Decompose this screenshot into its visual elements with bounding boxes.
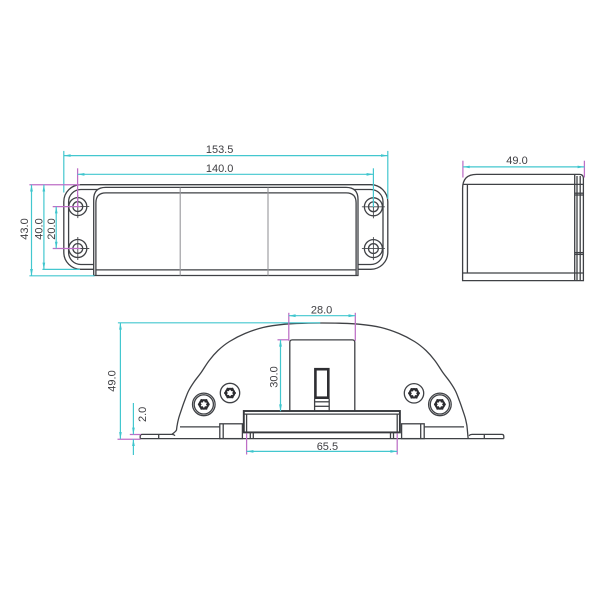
svg-text:2.0: 2.0 xyxy=(137,407,149,422)
svg-text:49.0: 49.0 xyxy=(106,370,118,391)
svg-text:43.0: 43.0 xyxy=(19,218,31,239)
svg-text:140.0: 140.0 xyxy=(206,163,234,175)
svg-text:153.5: 153.5 xyxy=(206,144,234,156)
svg-text:40.0: 40.0 xyxy=(34,218,46,239)
svg-text:20.0: 20.0 xyxy=(46,218,58,239)
svg-text:30.0: 30.0 xyxy=(269,366,281,387)
svg-text:28.0: 28.0 xyxy=(311,304,332,316)
svg-text:49.0: 49.0 xyxy=(506,155,527,167)
svg-text:65.5: 65.5 xyxy=(317,441,338,453)
